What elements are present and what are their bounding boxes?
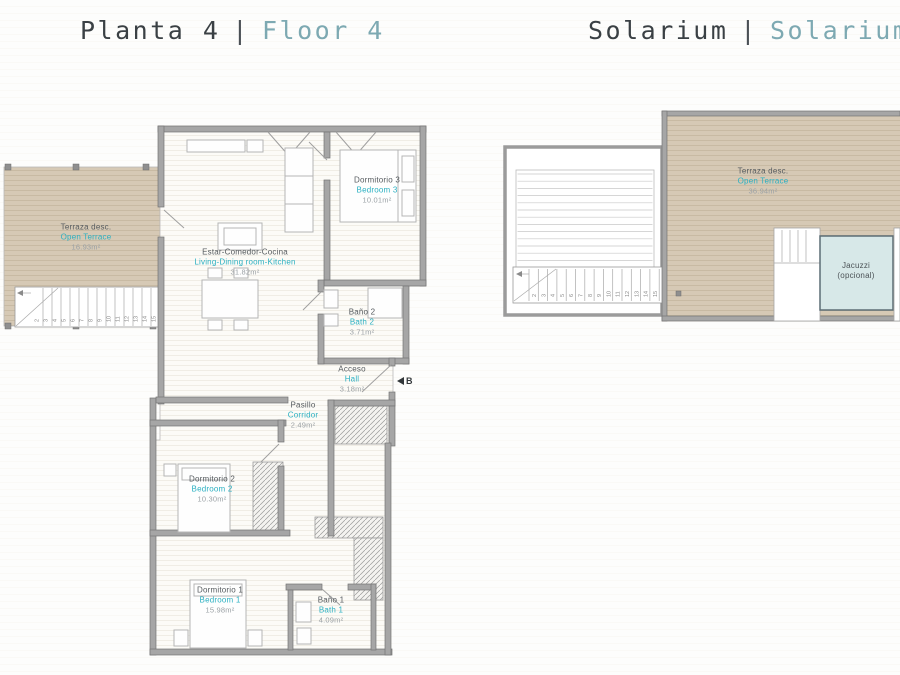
label-bedroom-1: Dormitorio 1 Bedroom 1 15.98m²: [197, 585, 243, 614]
floor4-terrace-stairs: 2345678910111213141516: [15, 287, 167, 327]
svg-text:13: 13: [634, 291, 640, 297]
label-open-terrace: Terraza desc. Open Terrace 16.93m²: [61, 222, 112, 251]
room-area: 3.71m²: [349, 327, 376, 336]
room-area: 10.30m²: [189, 494, 235, 503]
svg-text:15: 15: [653, 291, 659, 297]
room-name-en: Hall: [338, 374, 365, 384]
room-name-es: Terraza desc.: [61, 222, 112, 232]
solarium-stairs: 2345678910111213141516: [513, 267, 668, 303]
room-name-en: Bedroom 2: [189, 484, 235, 494]
room-name-en: Bedroom 1: [197, 595, 243, 605]
label-solarium-terrace: Terraza desc. Open Terrace 36.94m²: [738, 166, 789, 195]
label-jacuzzi: Jacuzzi (opcional): [837, 261, 874, 281]
room-name-en: Open Terrace: [61, 232, 112, 242]
label-bath-1: Baño 1 Bath 1 4.09m²: [318, 595, 345, 624]
room-area: 36.94m²: [738, 186, 789, 195]
label-hall: Acceso Hall 3.18m²: [338, 364, 365, 393]
svg-text:8: 8: [89, 319, 95, 322]
svg-text:11: 11: [116, 316, 122, 322]
svg-text:14: 14: [644, 291, 650, 297]
entrance-arrow-icon: [397, 377, 404, 385]
room-area: 15.98m²: [197, 605, 243, 614]
svg-text:8: 8: [588, 294, 594, 297]
room-name-en: Living-Dining room-Kitchen: [194, 257, 295, 267]
svg-text:4: 4: [551, 294, 557, 297]
label-bedroom-3: Dormitorio 3 Bedroom 3 10.01m²: [354, 175, 400, 204]
room-area: 3.18m²: [338, 384, 365, 393]
svg-text:14: 14: [143, 316, 149, 322]
svg-text:15: 15: [152, 316, 158, 322]
room-name-en: Bath 1: [318, 605, 345, 615]
svg-text:11: 11: [616, 291, 622, 297]
svg-text:6: 6: [569, 294, 575, 297]
jacuzzi-steps: [774, 228, 820, 321]
room-area: 4.09m²: [318, 615, 345, 624]
solarium-terrace: [662, 111, 900, 321]
floorplan-graphics: 2345678910111213141516: [0, 0, 900, 675]
svg-text:13: 13: [134, 316, 140, 322]
entrance-letter: B: [406, 376, 413, 386]
floorplan-sheet: Planta 4|Floor 4 Solarium|Solarium: [0, 0, 900, 675]
svg-text:5: 5: [62, 319, 68, 322]
svg-text:7: 7: [579, 294, 585, 297]
room-area: 16.93m²: [61, 242, 112, 251]
room-area: 10.01m²: [354, 195, 400, 204]
svg-text:3: 3: [541, 294, 547, 297]
svg-text:6: 6: [71, 319, 77, 322]
room-name-es: Baño 2: [349, 307, 376, 317]
room-name-es: Dormitorio 2: [189, 474, 235, 484]
room-name-en: Bath 2: [349, 317, 376, 327]
svg-text:5: 5: [560, 294, 566, 297]
room-name-es: Dormitorio 1: [197, 585, 243, 595]
room-name-es: Dormitorio 3: [354, 175, 400, 185]
label-bath-2: Baño 2 Bath 2 3.71m²: [349, 307, 376, 336]
label-bedroom-2: Dormitorio 2 Bedroom 2 10.30m²: [189, 474, 235, 503]
terrace-edge-cutoff: [894, 228, 900, 321]
room-name-en: Open Terrace: [738, 176, 789, 186]
jacuzzi-option: (opcional): [837, 271, 874, 281]
svg-text:9: 9: [597, 294, 603, 297]
room-name-es: Acceso: [338, 364, 365, 374]
svg-text:4: 4: [53, 319, 59, 322]
svg-text:7: 7: [80, 319, 86, 322]
label-corridor: Pasillo Corridor 2.49m²: [288, 400, 319, 429]
room-name-en: Corridor: [288, 410, 319, 420]
svg-text:10: 10: [107, 316, 113, 322]
svg-text:10: 10: [606, 291, 612, 297]
room-area: 31.82m²: [194, 267, 295, 276]
room-area: 2.49m²: [288, 420, 319, 429]
svg-text:12: 12: [625, 291, 631, 297]
room-name-en: Bedroom 3: [354, 185, 400, 195]
room-name-es: Baño 1: [318, 595, 345, 605]
svg-text:12: 12: [125, 316, 131, 322]
svg-text:2: 2: [532, 294, 538, 297]
room-name-es: Pasillo: [288, 400, 319, 410]
entrance-marker: B: [397, 376, 413, 386]
svg-text:3: 3: [44, 319, 50, 322]
room-name-es: Terraza desc.: [738, 166, 789, 176]
svg-text:9: 9: [98, 319, 104, 322]
jacuzzi-name: Jacuzzi: [837, 261, 874, 271]
room-name-es: Estar-Comedor-Cocina: [194, 247, 295, 257]
label-living-room: Estar-Comedor-Cocina Living-Dining room-…: [194, 247, 295, 276]
svg-text:2: 2: [35, 319, 41, 322]
